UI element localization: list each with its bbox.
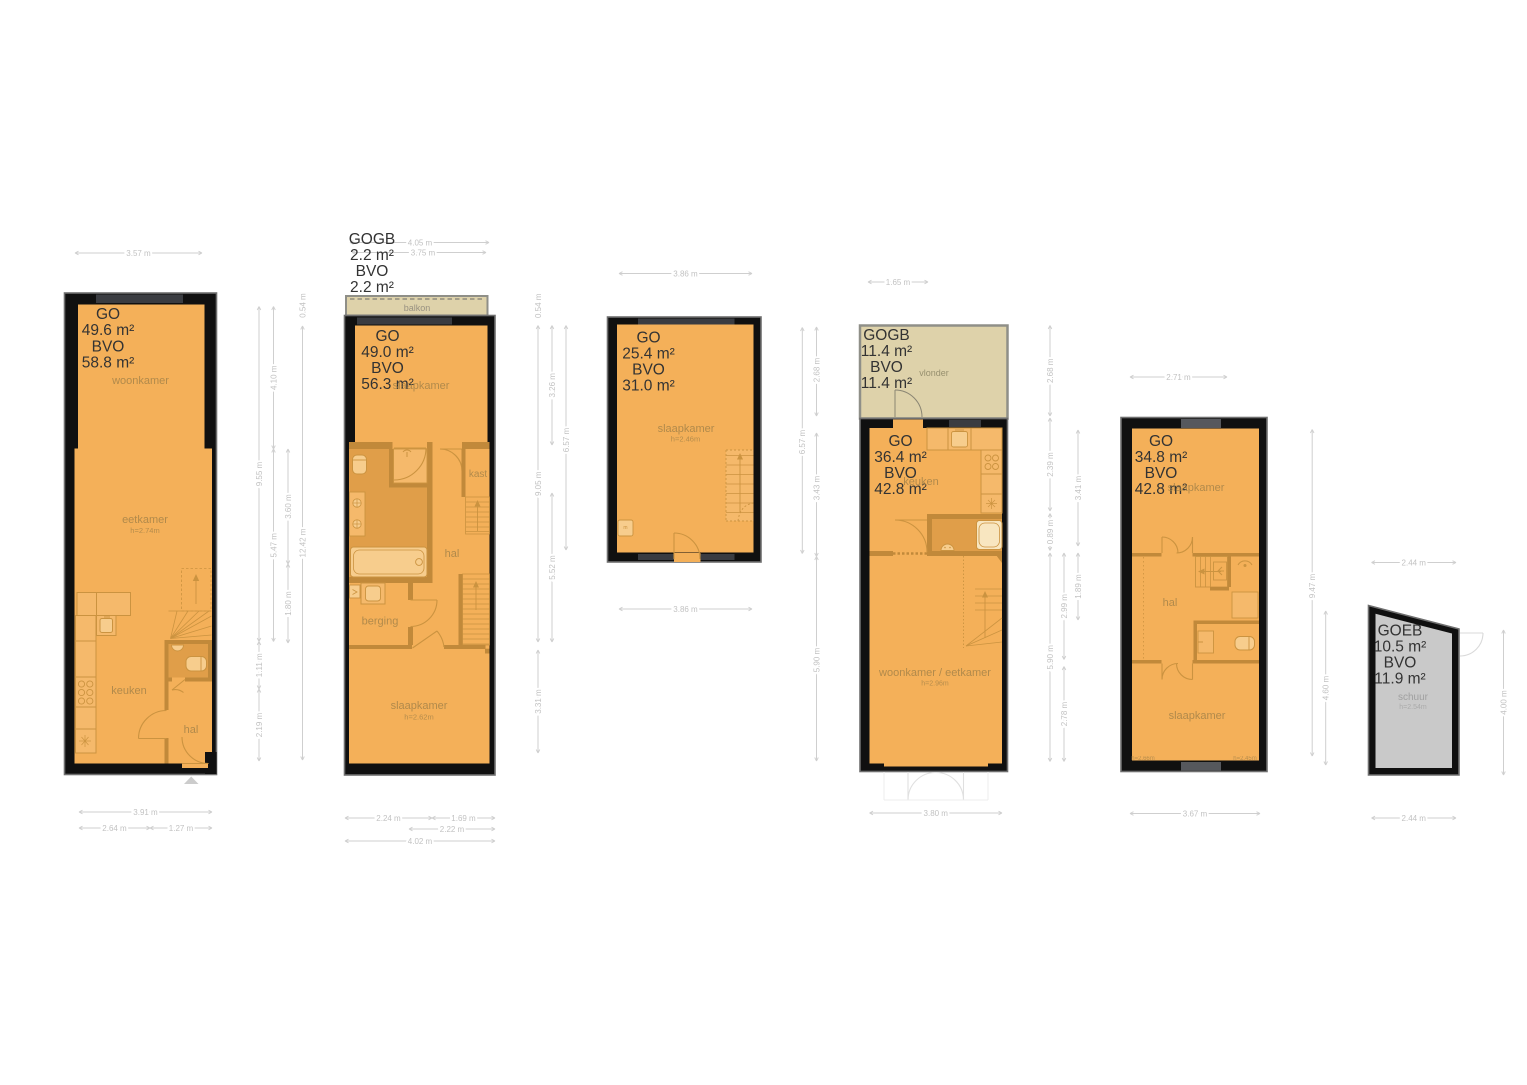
svg-text:h=2.74m: h=2.74m [130, 526, 159, 535]
svg-text:1.69 m: 1.69 m [451, 814, 476, 823]
svg-text:h=2.45m: h=2.45m [1233, 756, 1257, 762]
svg-text:3.80 m: 3.80 m [924, 809, 949, 818]
svg-text:slaapkamer: slaapkamer [393, 380, 450, 392]
svg-text:9.05 m: 9.05 m [534, 471, 543, 496]
svg-text:berging: berging [362, 616, 399, 628]
svg-text:49.6 m²: 49.6 m² [82, 322, 135, 339]
svg-text:m: m [623, 525, 627, 531]
svg-text:3.67 m: 3.67 m [1183, 809, 1208, 818]
svg-text:woonkamer / eetkamer: woonkamer / eetkamer [878, 667, 991, 679]
svg-text:5.47 m: 5.47 m [269, 533, 278, 558]
svg-text:slaapkamer: slaapkamer [1169, 710, 1226, 722]
svg-text:GO: GO [888, 433, 912, 450]
svg-text:3.60 m: 3.60 m [284, 494, 293, 519]
svg-text:5.90 m: 5.90 m [812, 647, 821, 672]
svg-text:3.57 m: 3.57 m [126, 249, 151, 258]
svg-text:4.02 m: 4.02 m [408, 837, 433, 846]
svg-text:BVO: BVO [356, 263, 389, 280]
svg-text:slaapkamer: slaapkamer [658, 423, 715, 435]
svg-text:3.41 m: 3.41 m [1074, 475, 1083, 500]
svg-text:4.05 m: 4.05 m [408, 238, 433, 247]
svg-text:2.99 m: 2.99 m [1060, 594, 1069, 619]
svg-text:1.27 m: 1.27 m [169, 824, 194, 833]
svg-text:2.78 m: 2.78 m [1060, 701, 1069, 726]
svg-text:2.39 m: 2.39 m [1046, 452, 1055, 477]
svg-text:0.54 m: 0.54 m [298, 293, 307, 318]
svg-text:woonkamer: woonkamer [111, 375, 169, 387]
svg-text:slaapkamer: slaapkamer [1168, 482, 1225, 494]
svg-text:0.89 m: 0.89 m [1046, 519, 1055, 544]
svg-text:6.57 m: 6.57 m [798, 429, 807, 454]
svg-text:keuken: keuken [111, 685, 146, 697]
svg-text:GO: GO [375, 328, 399, 345]
svg-text:GO: GO [636, 330, 660, 347]
svg-text:h=2.62m: h=2.62m [404, 713, 433, 722]
svg-text:BVO: BVO [371, 360, 404, 377]
svg-text:1.89 m: 1.89 m [1074, 574, 1083, 599]
svg-text:BVO: BVO [1384, 655, 1417, 672]
svg-text:GOGB: GOGB [349, 231, 396, 248]
svg-text:GO: GO [96, 306, 120, 323]
svg-text:2.24 m: 2.24 m [376, 814, 401, 823]
svg-text:h=2.54m: h=2.54m [1399, 704, 1427, 711]
svg-text:11.4 m²: 11.4 m² [861, 375, 912, 392]
svg-text:2.22 m: 2.22 m [440, 825, 465, 834]
svg-text:2.44 m: 2.44 m [1402, 558, 1427, 567]
svg-text:2.68 m: 2.68 m [812, 357, 821, 382]
svg-text:36.4 m²: 36.4 m² [874, 449, 927, 466]
svg-text:10.5 m²: 10.5 m² [1374, 639, 1427, 656]
svg-text:1.11 m: 1.11 m [255, 653, 264, 677]
svg-text:2.2 m²: 2.2 m² [350, 247, 394, 264]
svg-text:h=2.96m: h=2.96m [921, 681, 949, 688]
svg-text:25.4 m²: 25.4 m² [622, 346, 675, 363]
svg-text:slaapkamer: slaapkamer [391, 700, 448, 712]
svg-text:eetkamer: eetkamer [122, 514, 168, 526]
svg-text:4.60 m: 4.60 m [1322, 675, 1331, 700]
svg-text:3.26 m: 3.26 m [548, 373, 557, 398]
svg-text:3.91 m: 3.91 m [133, 808, 158, 817]
svg-text:1.65 m: 1.65 m [886, 278, 911, 287]
svg-text:hal: hal [445, 548, 460, 560]
svg-text:0.54 m: 0.54 m [534, 293, 543, 318]
svg-text:2.64 m: 2.64 m [102, 824, 127, 833]
svg-text:3.75 m: 3.75 m [411, 248, 436, 257]
svg-text:kast: kast [469, 469, 488, 480]
svg-text:BVO: BVO [92, 338, 125, 355]
svg-text:GOGB: GOGB [863, 327, 910, 344]
svg-text:6.57 m: 6.57 m [562, 427, 571, 452]
svg-text:schuur: schuur [1398, 692, 1429, 703]
svg-text:h=2.46m: h=2.46m [671, 435, 700, 444]
svg-text:2.2 m²: 2.2 m² [350, 279, 394, 296]
svg-text:4.00 m: 4.00 m [1499, 690, 1508, 715]
svg-text:2.19 m: 2.19 m [255, 712, 264, 737]
svg-text:3.86 m: 3.86 m [673, 605, 698, 614]
svg-text:keuken: keuken [903, 476, 938, 488]
svg-text:9.47 m: 9.47 m [1308, 573, 1317, 598]
svg-text:5.90 m: 5.90 m [1046, 645, 1055, 670]
svg-text:GOEB: GOEB [1378, 623, 1423, 640]
svg-text:11.4 m²: 11.4 m² [861, 343, 912, 360]
svg-text:58.8 m²: 58.8 m² [82, 355, 135, 372]
svg-text:GO: GO [1149, 433, 1173, 450]
svg-text:vlonder: vlonder [919, 368, 949, 378]
svg-text:3.43 m: 3.43 m [812, 475, 821, 500]
svg-text:balkon: balkon [404, 303, 431, 313]
svg-text:9.55 m: 9.55 m [255, 461, 264, 486]
svg-text:5.52 m: 5.52 m [548, 555, 557, 580]
svg-text:1.80 m: 1.80 m [284, 591, 293, 616]
svg-text:2.44 m: 2.44 m [1402, 814, 1427, 823]
svg-text:BVO: BVO [870, 359, 903, 376]
svg-text:4.10 m: 4.10 m [269, 365, 278, 390]
svg-text:11.9 m²: 11.9 m² [1374, 671, 1425, 688]
svg-text:34.8 m²: 34.8 m² [1135, 449, 1188, 466]
svg-text:31.0 m²: 31.0 m² [622, 378, 675, 395]
svg-text:49.0 m²: 49.0 m² [361, 344, 414, 361]
svg-text:BVO: BVO [1145, 465, 1178, 482]
svg-text:hal: hal [1163, 597, 1178, 609]
svg-text:h=2.66m: h=2.66m [1131, 756, 1155, 762]
svg-text:2.71 m: 2.71 m [1166, 373, 1191, 382]
svg-text:hal: hal [184, 724, 199, 736]
svg-text:2.68 m: 2.68 m [1046, 358, 1055, 383]
svg-text:12.42 m: 12.42 m [298, 528, 307, 557]
svg-text:3.86 m: 3.86 m [673, 269, 698, 278]
svg-text:3.31 m: 3.31 m [534, 689, 543, 714]
svg-text:BVO: BVO [632, 362, 665, 379]
